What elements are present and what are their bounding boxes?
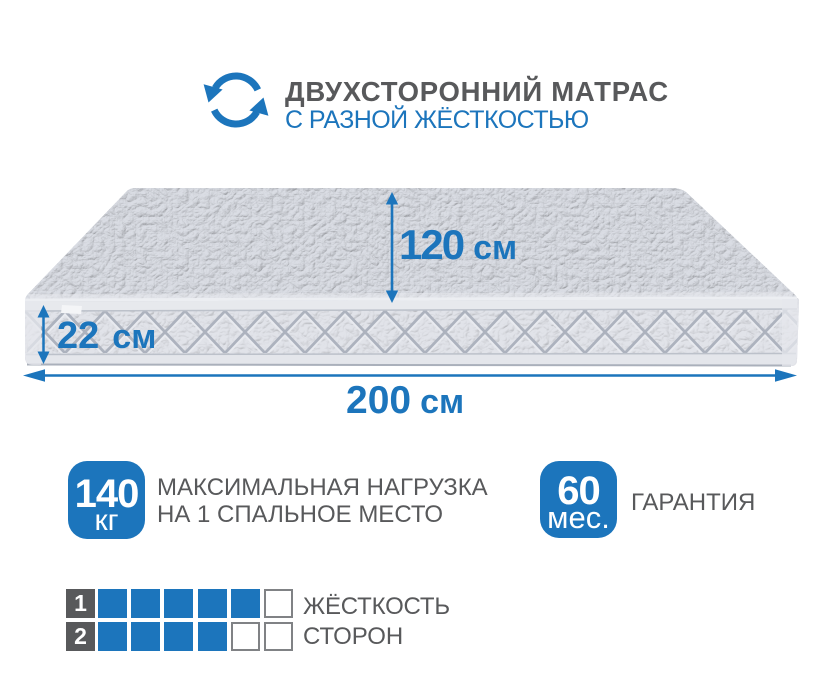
- svg-text:120см: 120см: [399, 221, 517, 268]
- svg-text:200см: 200см: [346, 379, 464, 420]
